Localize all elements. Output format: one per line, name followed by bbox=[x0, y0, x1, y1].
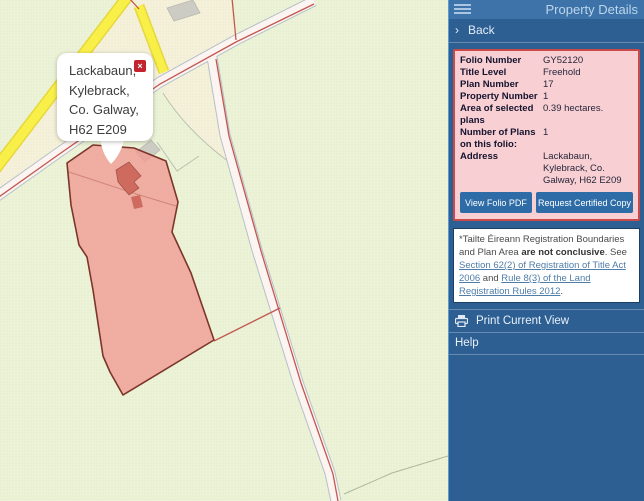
close-icon[interactable]: × bbox=[134, 60, 146, 72]
print-current-view-button[interactable]: Print Current View bbox=[449, 309, 644, 333]
disclaimer-text: . See bbox=[605, 247, 627, 258]
row-label: Address bbox=[460, 151, 543, 187]
row-value: Freehold bbox=[543, 67, 633, 79]
map-popup: Lackabaun, Kylebrack, Co. Galway, H62 E2… bbox=[57, 53, 153, 141]
disclaimer-text: . bbox=[560, 286, 563, 297]
request-certified-copy-button[interactable]: Request Certified Copy bbox=[536, 192, 633, 213]
row-value: Lackabaun, Kylebrack, Co. Galway, H62 E2… bbox=[543, 151, 633, 187]
row-label: Folio Number bbox=[460, 55, 543, 67]
property-details-sidebar: Property Details ›Back Folio Number GY52… bbox=[448, 0, 644, 501]
row-value: 0.39 hectares. bbox=[543, 103, 633, 127]
folio-row: Property Number 1 bbox=[460, 91, 633, 103]
row-label: Plan Number bbox=[460, 79, 543, 91]
print-label: Print Current View bbox=[476, 310, 569, 332]
folio-details-panel: Folio Number GY52120 Title Level Freehol… bbox=[453, 49, 640, 221]
boundaries-disclaimer: *Tailte Éireann Registration Boundaries … bbox=[453, 228, 640, 303]
row-value: 1 bbox=[543, 127, 633, 151]
row-value: GY52120 bbox=[543, 55, 633, 67]
panel-title: Property Details bbox=[546, 2, 638, 17]
disclaimer-bold: are not conclusive bbox=[521, 247, 604, 258]
row-value: 17 bbox=[543, 79, 633, 91]
hamburger-menu-icon[interactable] bbox=[454, 4, 471, 16]
popup-address: Lackabaun, Kylebrack, Co. Galway, H62 E2… bbox=[69, 61, 143, 139]
row-label: Area of selected plans bbox=[460, 103, 543, 127]
property-map-app: Lackabaun, Kylebrack, Co. Galway, H62 E2… bbox=[0, 0, 644, 501]
back-button[interactable]: ›Back bbox=[449, 19, 644, 43]
back-label: Back bbox=[468, 23, 495, 37]
folio-row: Number of Plans on this folio: 1 bbox=[460, 127, 633, 151]
view-folio-pdf-button[interactable]: View Folio PDF bbox=[460, 192, 532, 213]
folio-row: Area of selected plans 0.39 hectares. bbox=[460, 103, 633, 127]
help-label: Help bbox=[455, 337, 479, 349]
folio-row: Address Lackabaun, Kylebrack, Co. Galway… bbox=[460, 151, 633, 187]
row-label: Title Level bbox=[460, 67, 543, 79]
row-label: Number of Plans on this folio: bbox=[460, 127, 543, 151]
folio-row: Title Level Freehold bbox=[460, 67, 633, 79]
row-value: 1 bbox=[543, 91, 633, 103]
folio-row: Plan Number 17 bbox=[460, 79, 633, 91]
row-label: Property Number bbox=[460, 91, 543, 103]
folio-actions: View Folio PDF Request Certified Copy bbox=[460, 192, 633, 213]
map-viewport[interactable]: Lackabaun, Kylebrack, Co. Galway, H62 E2… bbox=[0, 0, 448, 501]
sidebar-header: Property Details bbox=[449, 0, 644, 19]
help-button[interactable]: Help bbox=[449, 333, 644, 355]
printer-icon bbox=[455, 315, 468, 327]
folio-row: Folio Number GY52120 bbox=[460, 55, 633, 67]
disclaimer-text: and bbox=[480, 273, 501, 284]
chevron-right-icon: › bbox=[455, 19, 459, 42]
